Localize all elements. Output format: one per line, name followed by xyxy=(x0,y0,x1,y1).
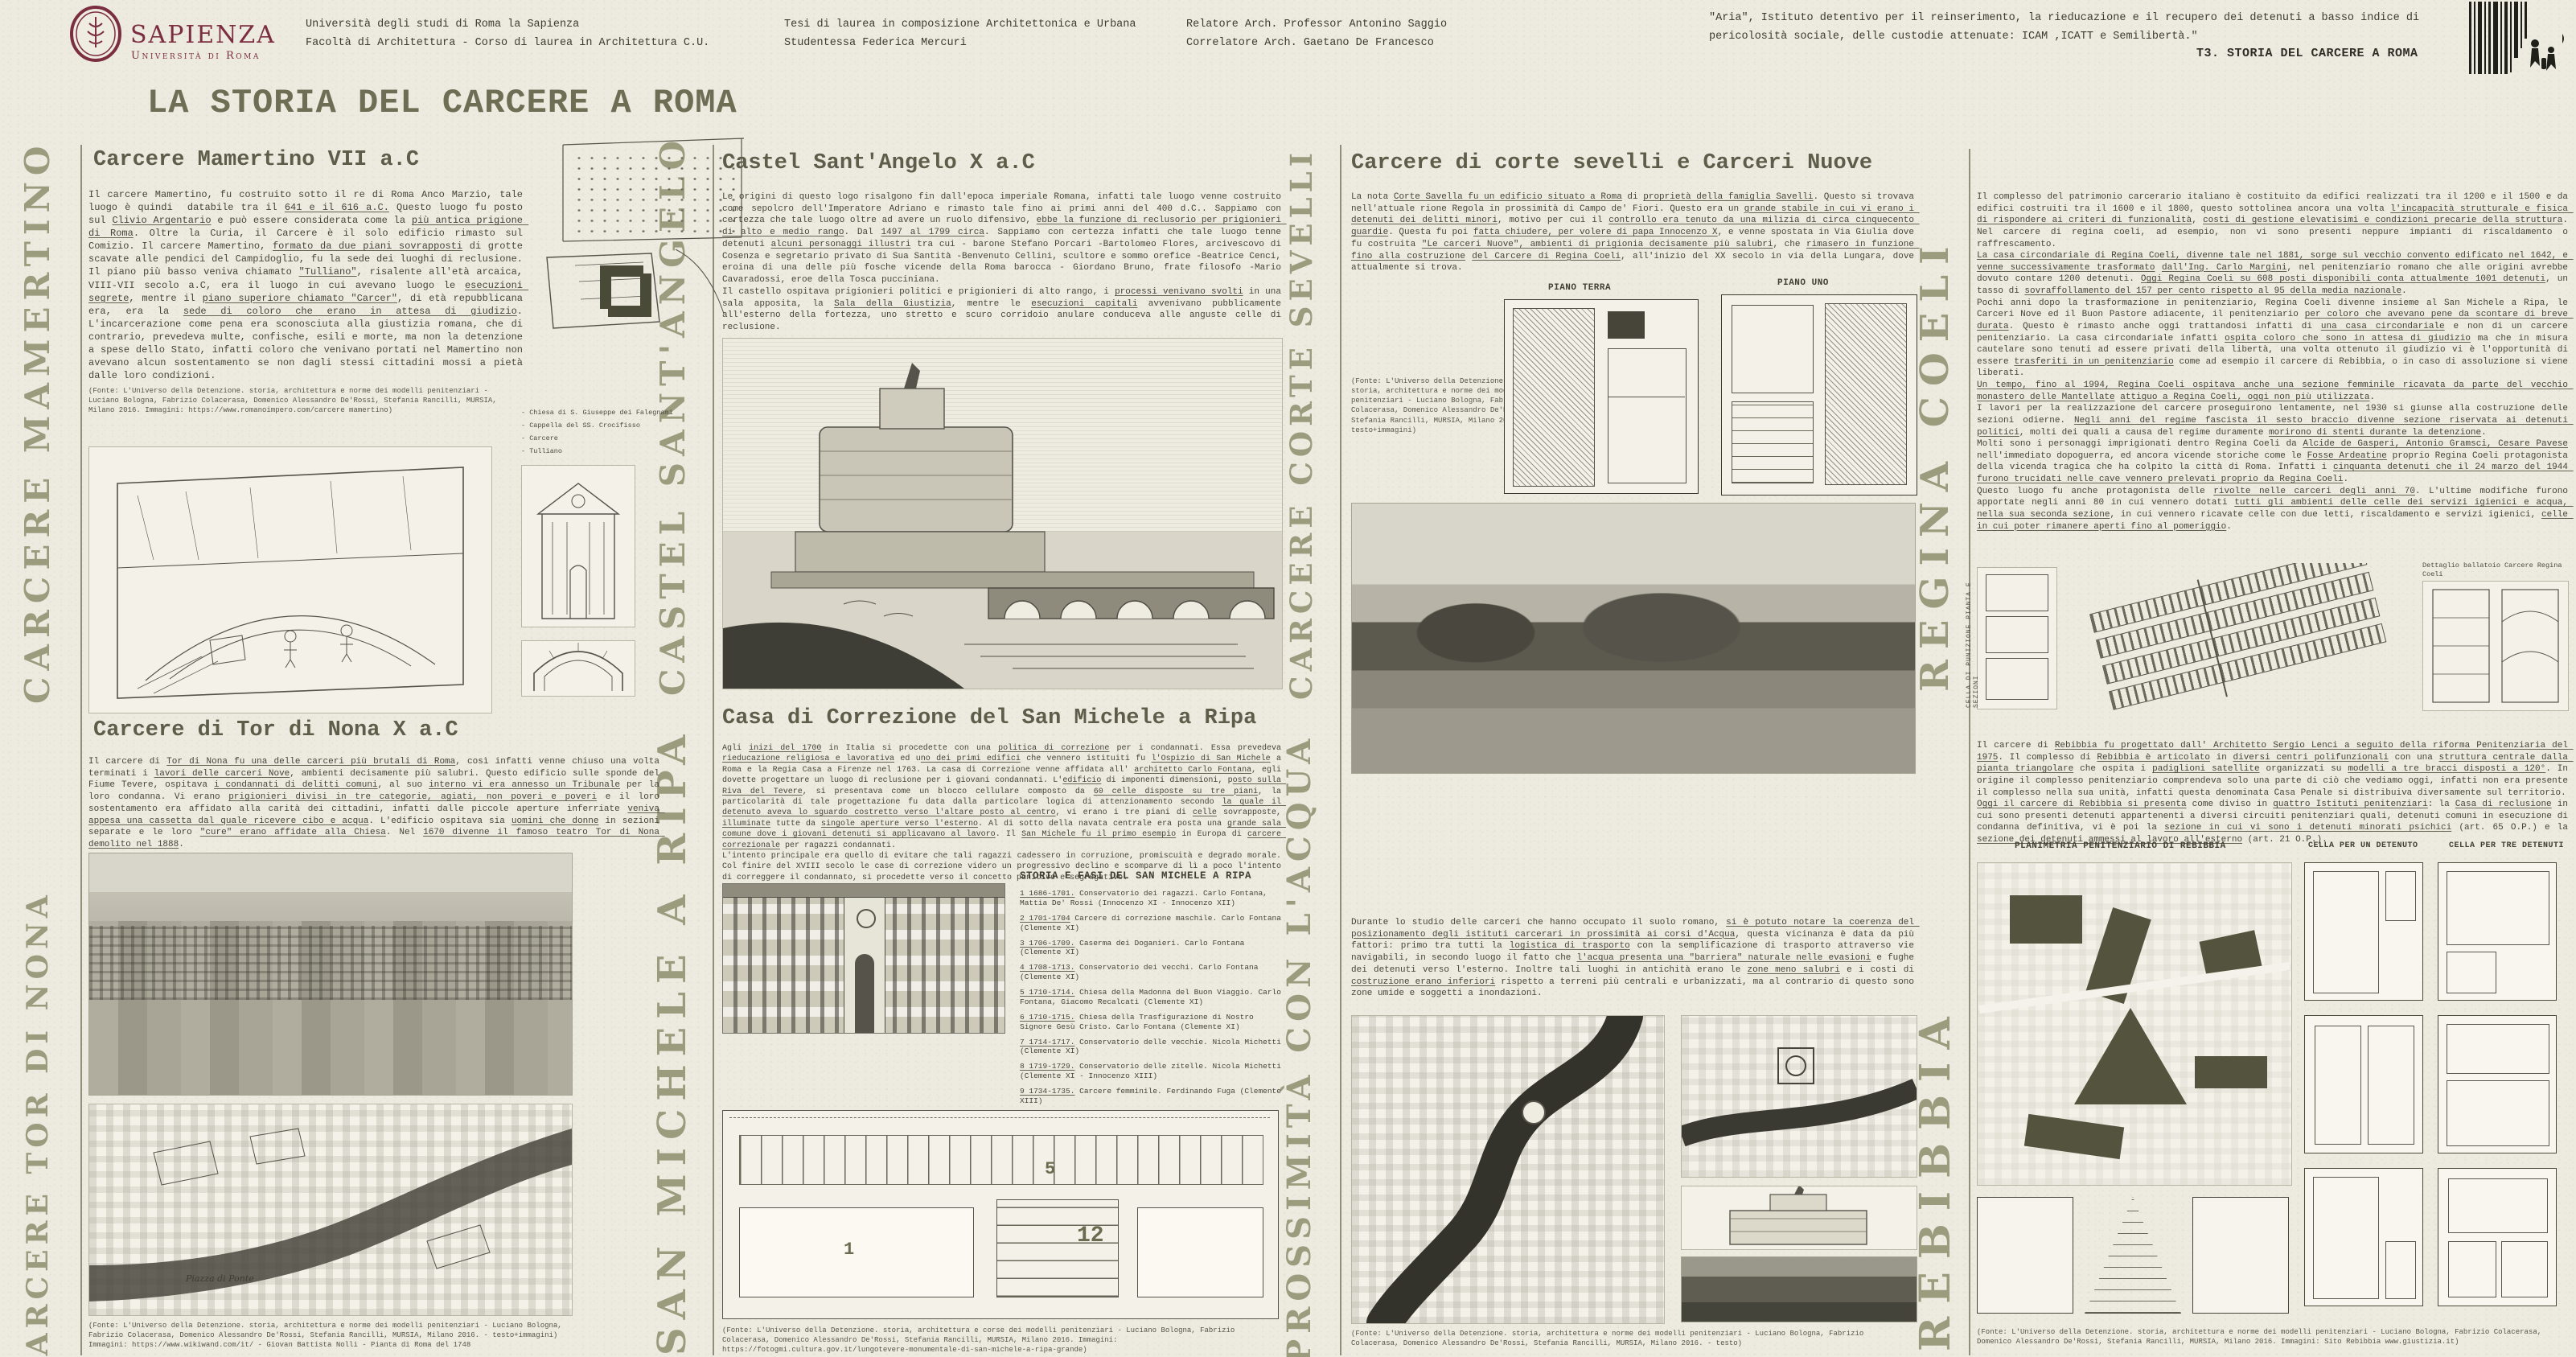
phase-item: 4 1708-1713. Conservatorio dei vecchi. C… xyxy=(1020,963,1283,982)
cell-plan-card xyxy=(2304,1015,2423,1153)
plan-thumb xyxy=(2085,1197,2181,1314)
sidebar-label-mamertino: CARCERE MAMERTINO xyxy=(18,149,57,704)
piano-uno-label: PIANO UNO xyxy=(1777,278,1829,288)
sidebar-label-rebibbia: REBIBBIA xyxy=(1911,724,1960,1351)
phase-item: 1 1686-1701. Conservatorio dei ragazzi. … xyxy=(1020,889,1283,908)
acqua-bottom-photo xyxy=(1681,1256,1917,1322)
mamertino-figure-label-3: - Carcere xyxy=(521,432,558,445)
sapienza-wordmark: SAPIENZA xyxy=(130,21,276,49)
caption-rebibbia: (Fonte: L'Universo della Detenzione. sto… xyxy=(1977,1327,2568,1347)
phase-item: 3 1706-1709. Caserma dei Doganieri. Carl… xyxy=(1020,939,1283,958)
section-heading-mamertino: Carcere Mamertino VII a.C xyxy=(93,148,419,172)
plan-number-1: 1 xyxy=(844,1240,854,1260)
page-title: LA STORIA DEL CARCERE A ROMA xyxy=(147,84,737,122)
cell-plan-card xyxy=(2438,1168,2557,1306)
plan-number-12: 12 xyxy=(1077,1223,1104,1248)
mamertino-figure-label-1: - Chiesa di S. Giuseppe dei Falegnami xyxy=(521,406,673,419)
section-heading-tordinona: Carcere di Tor di Nona X a.C xyxy=(93,718,458,742)
header-project-statement: "Aria", Istituto detentivo per il reinse… xyxy=(1709,10,2419,47)
acqua-castel-elevation-sketch xyxy=(1681,1186,1917,1250)
barcode-figures-icon xyxy=(2467,2,2570,76)
corte-piano-terra-plan xyxy=(1504,299,1699,494)
section-body-cortesavella: La nota Corte Savella fu un edificio sit… xyxy=(1351,191,1914,274)
section-body-reginacoeli: Il complesso del patrimonio carcerario i… xyxy=(1977,191,2568,533)
regina-cell-detail-figure xyxy=(1977,567,2057,709)
cell-plan-card xyxy=(2304,1168,2423,1306)
tiber-river-art xyxy=(1352,1016,1664,1323)
section-heading-castello: Castel Sant'Angelo X a.C xyxy=(722,151,1035,175)
column-rule-1 xyxy=(80,145,82,1355)
mamertino-church-facade-figure xyxy=(521,465,635,627)
sidebar-label-tordinona: CARCERE TOR DI NONA xyxy=(21,901,55,1357)
caption-tordinona: (Fonte: L'Universo della Detenzione. sto… xyxy=(88,1321,571,1350)
mamertino-arch-figure xyxy=(521,640,635,697)
header-university: Università degli studi di Roma la Sapien… xyxy=(306,16,709,53)
rebibbia-plan-label: PLANIMETRIA PENITENZIARIO DI REBIBBIA xyxy=(2015,841,2226,851)
corte-piano-uno-plan xyxy=(1721,294,1917,496)
column-rule-3 xyxy=(1340,145,1341,1355)
section-body-mamertino: Il carcere Mamertino, fu costruito sotto… xyxy=(88,188,523,382)
caption-sanmichele: (Fonte: L'Universo della Detenzione. sto… xyxy=(722,1326,1277,1355)
cell-plan-card xyxy=(2438,862,2557,1001)
cell-plan-card xyxy=(2438,1015,2557,1153)
sanmichele-phases-title: STORIA E FASI DEL SAN MICHELE A RIPA xyxy=(1020,870,1251,882)
mamertino-figure-label-2: - Cappella del SS. Crocifisso xyxy=(521,419,640,432)
sanmichele-elevation-figure xyxy=(722,883,1005,1034)
header-advisors: Relatore Arch. Professor Antonino Saggio… xyxy=(1186,16,1447,53)
header-thesis: Tesi di laurea in composizione Architett… xyxy=(784,16,1136,53)
plan-thumb xyxy=(1977,1197,2073,1314)
section-heading-cortesavella: Carcere di corte sevelli e Carceri Nuove xyxy=(1351,151,1872,175)
board-code: T3. STORIA DEL CARCERE A ROMA xyxy=(2196,47,2418,60)
rebibbia-cell3-label: CELLA PER TRE DETENUTI xyxy=(2449,841,2564,850)
caption-acqua: (Fonte: L'Universo della Detenzione. sto… xyxy=(1351,1329,1914,1348)
plan-number-5: 5 xyxy=(1045,1159,1055,1179)
poster-board: SAPIENZA Università di Roma Università d… xyxy=(0,0,2576,1357)
sidebar-label-cortesavella: CARCERE CORTE SEVELLI xyxy=(1284,149,1319,700)
piano-terra-label: PIANO TERRA xyxy=(1548,283,1611,293)
cell-plan-card xyxy=(2304,862,2423,1001)
photo-facade-texture xyxy=(89,926,572,1000)
tordinona-riverfront-photo xyxy=(88,853,573,1096)
regina-detail-figure xyxy=(2422,581,2569,711)
section-body-sanmichele: Agli inizi del 1700 in Italia si procede… xyxy=(722,743,1281,883)
phase-item: 9 1734-1735. Carcere femminile. Ferdinan… xyxy=(1020,1087,1283,1106)
mamertino-figure-label-4: - Tulliano xyxy=(521,445,562,458)
phase-item: 7 1714-1717. Conservatorio delle vecchie… xyxy=(1020,1038,1283,1057)
section-body-tordinona: Il carcere di Tor di Nona fu una delle c… xyxy=(88,756,659,851)
phase-item: 5 1710-1714. Chiesa della Madonna del Bu… xyxy=(1020,988,1283,1007)
rebibbia-plans-row xyxy=(1977,1197,2290,1314)
section-body-rebibbia: Il carcere di Rebibbia fu progettato dal… xyxy=(1977,740,2568,846)
column-rule-4 xyxy=(1969,149,1970,1355)
phase-item: 8 1719-1729. Conservatorio delle zitelle… xyxy=(1020,1062,1283,1081)
acqua-rome-map-figure xyxy=(1351,1015,1665,1324)
mamertino-cutaway-figure xyxy=(88,446,492,713)
regina-detail-caption: Dettaglio ballatoio Carcere Regina Coeli xyxy=(2422,561,2567,579)
plan-thumb xyxy=(2192,1197,2289,1314)
section-heading-sanmichele: Casa di Correzione del San Michele a Rip… xyxy=(722,706,1256,730)
section-body-castello: Le origini di questo logo risalgono fin … xyxy=(722,191,1281,334)
sapienza-crest-icon xyxy=(69,6,122,62)
thesis-bracket-logo-icon xyxy=(600,265,651,317)
regina-wings-art xyxy=(2080,563,2400,712)
regina-plan-figure xyxy=(2067,563,2413,712)
acqua-river-photo xyxy=(1351,503,1916,774)
sidebar-label-acqua: PROSSIMITÀ CON L'ACQUA xyxy=(1280,724,1318,1357)
map-label-piazza-di-ponte: Piazza di Ponte xyxy=(186,1273,254,1284)
phase-item: 6 1710-1715. Chiesa della Trasfigurazion… xyxy=(1020,1013,1283,1032)
rebibbia-planimetria-figure xyxy=(1977,862,2292,1186)
caption-mamertino: (Fonte: L'Universo della Detenzione. sto… xyxy=(88,386,507,415)
acqua-detail-map-figure xyxy=(1681,1015,1917,1178)
phase-item: 2 1701-1704 Carcere di correzione maschi… xyxy=(1020,914,1283,933)
castello-engraving-figure xyxy=(722,338,1283,689)
tordinona-nolli-map-figure: Piazza di Ponte xyxy=(88,1104,573,1316)
regina-cell-label: CELLA DI PUNIZIONE PIANTA E SEZIONI xyxy=(1966,567,1980,708)
section-body-acqua: Durante lo studio delle carceri che hann… xyxy=(1351,917,1914,1000)
sanmichele-plan-figure: 1 5 12 xyxy=(722,1110,1279,1319)
rebibbia-cell1-label: CELLA PER UN DETENUTO xyxy=(2308,841,2418,850)
sapienza-wordmark-sub: Università di Roma xyxy=(131,50,261,62)
rebibbia-cells-grid xyxy=(2304,862,2566,1313)
